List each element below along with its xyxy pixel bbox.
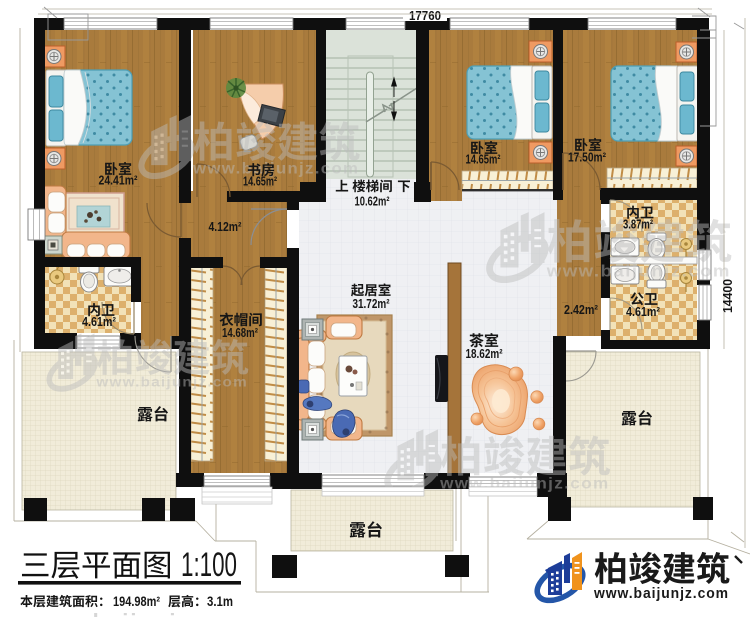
svg-text:194.98m²: 194.98m² — [113, 594, 160, 609]
svg-text:www.baijunjz.com: www.baijunjz.com — [593, 585, 729, 602]
svg-text:4.61m²: 4.61m² — [626, 305, 660, 319]
svg-text:3.87m²: 3.87m² — [623, 218, 653, 232]
svg-text:www.baijunjz.com: www.baijunjz.com — [27, 609, 250, 617]
svg-text:14.65m²: 14.65m² — [243, 175, 277, 189]
svg-text:14.65m²: 14.65m² — [466, 153, 501, 167]
svg-text:2.42m²: 2.42m² — [564, 303, 598, 317]
svg-text:18.62m²: 18.62m² — [466, 347, 503, 361]
svg-text:17.50m²: 17.50m² — [568, 151, 606, 165]
svg-text:3.1m: 3.1m — [207, 594, 233, 609]
svg-text:1:100: 1:100 — [181, 546, 237, 584]
svg-text:31.72m²: 31.72m² — [353, 297, 390, 311]
svg-text:14400: 14400 — [720, 279, 735, 313]
svg-text:24.41m²: 24.41m² — [99, 174, 138, 188]
svg-text:14.68m²: 14.68m² — [222, 326, 258, 340]
svg-text:4.12m²: 4.12m² — [209, 220, 242, 234]
svg-text:17760: 17760 — [409, 8, 441, 23]
svg-text:4.61m²: 4.61m² — [82, 315, 116, 329]
svg-text:10.62m²: 10.62m² — [355, 195, 390, 209]
